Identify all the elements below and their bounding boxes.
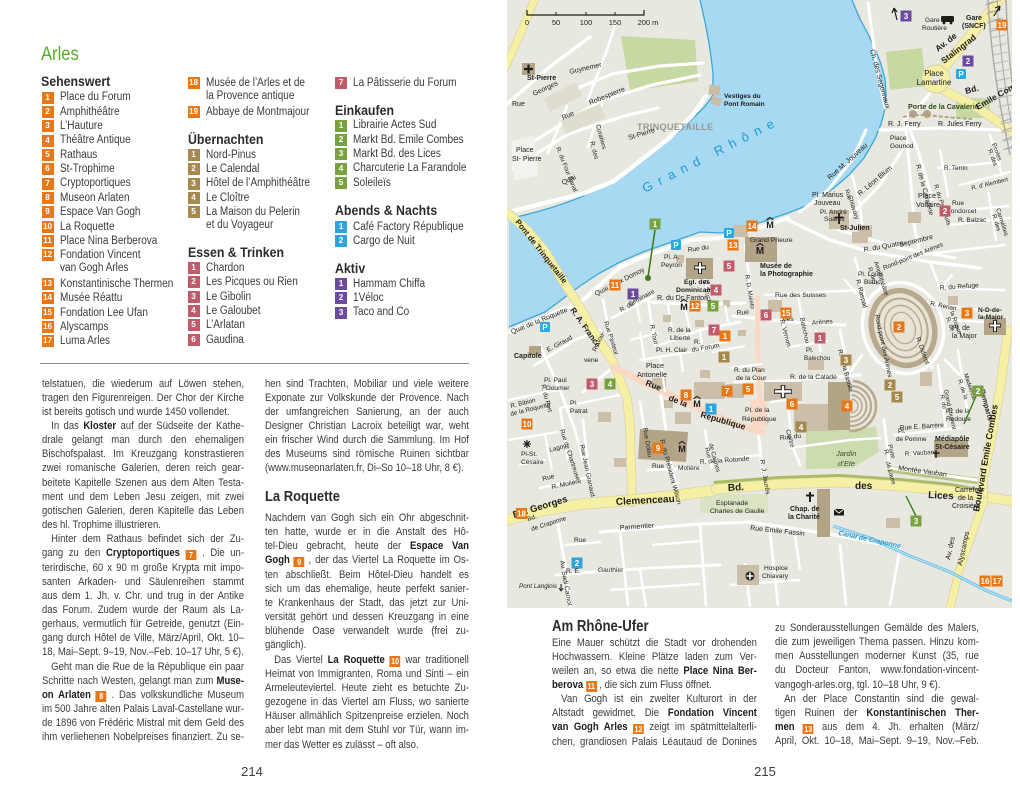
svg-text:la Major: la Major [952, 333, 978, 340]
svg-text:Place: Place [890, 135, 907, 142]
svg-text:St-Césaire: St-Césaire [935, 444, 970, 451]
svg-text:1: 1 [723, 332, 728, 341]
svg-text:17: 17 [993, 577, 1002, 586]
svg-text:Suarez: Suarez [824, 216, 845, 223]
svg-text:P: P [673, 241, 679, 250]
svg-text:la-Major: la-Major [978, 314, 1004, 321]
svg-text:Liberté: Liberté [670, 335, 690, 342]
svg-text:Hospice: Hospice [764, 565, 788, 572]
svg-text:Pont Romain: Pont Romain [724, 101, 765, 108]
svg-text:1: 1 [631, 290, 636, 299]
svg-text:St- Pierre: St- Pierre [512, 156, 542, 163]
svg-text:Rue: Rue [737, 309, 750, 317]
svg-text:M: M [693, 399, 701, 409]
svg-text:Routière: Routière [922, 25, 947, 32]
svg-text:vene: vene [584, 357, 599, 364]
svg-text:Place: Place [646, 361, 664, 370]
svg-text:15: 15 [782, 309, 791, 318]
svg-text:2: 2 [943, 207, 948, 216]
svg-text:5: 5 [727, 262, 732, 271]
svg-text:Grand Prieure: Grand Prieure [750, 237, 793, 244]
svg-text:3: 3 [904, 12, 909, 21]
svg-text:St-Pierre: St-Pierre [527, 75, 556, 82]
svg-text:Rue: Rue [574, 537, 586, 544]
svg-text:5: 5 [746, 385, 751, 394]
svg-text:Charles de Gaulle: Charles de Gaulle [710, 508, 765, 515]
svg-text:Pl. de la: Pl. de la [745, 407, 770, 414]
svg-text:R. Balzac: R. Balzac [958, 217, 987, 224]
svg-text:Pl. H. Clair: Pl. H. Clair [656, 347, 688, 354]
svg-text:18: 18 [517, 510, 526, 519]
svg-text:6: 6 [790, 400, 795, 409]
svg-text:2: 2 [888, 381, 893, 390]
svg-text:Blanc: Blanc [864, 279, 881, 286]
svg-text:Place: Place [516, 147, 534, 154]
svg-text:Place: Place [924, 69, 944, 78]
svg-text:2: 2 [976, 387, 981, 396]
svg-text:150: 150 [609, 18, 622, 27]
svg-text:Capitole: Capitole [514, 353, 542, 360]
svg-text:Jardin: Jardin [835, 449, 856, 458]
svg-text:12: 12 [691, 302, 700, 311]
svg-text:Carrefour: Carrefour [955, 487, 985, 494]
svg-text:M: M [756, 246, 764, 257]
svg-text:M: M [766, 220, 774, 230]
svg-text:Vestiges du: Vestiges du [724, 93, 761, 100]
svg-text:St-Julien: St-Julien [840, 225, 870, 232]
svg-text:14: 14 [748, 222, 757, 231]
svg-text:Gounod: Gounod [890, 143, 914, 150]
svg-text:N-D-de-: N-D-de- [978, 307, 1002, 314]
svg-text:de la Cour: de la Cour [736, 375, 767, 382]
svg-text:Pont Langlois: Pont Langlois [519, 583, 558, 590]
svg-text:1: 1 [709, 405, 714, 414]
svg-text:P: P [726, 229, 732, 238]
svg-text:10: 10 [523, 420, 532, 429]
svg-text:Rue: Rue [652, 463, 664, 470]
svg-text:11: 11 [611, 281, 620, 290]
svg-text:d’Ete: d’Ete [838, 459, 855, 468]
svg-text:Chiavary: Chiavary [762, 573, 789, 580]
svg-text:Balechou: Balechou [804, 355, 831, 362]
svg-text:Pl. Paul: Pl. Paul [544, 377, 567, 384]
svg-text:5: 5 [895, 393, 900, 402]
svg-text:P: P [958, 70, 964, 79]
svg-text:Molière: Molière [678, 465, 700, 472]
svg-text:de Pomme: de Pomme [896, 436, 927, 443]
svg-text:Lices: Lices [928, 490, 955, 502]
svg-text:Médiapôle: Médiapôle [935, 436, 969, 443]
svg-text:3: 3 [844, 356, 849, 365]
svg-text:M: M [680, 302, 688, 312]
svg-text:Rue des Suisses: Rue des Suisses [775, 292, 827, 299]
svg-text:des: des [855, 481, 873, 492]
svg-text:3: 3 [914, 517, 919, 526]
svg-text:19: 19 [998, 21, 1007, 30]
svg-text:Croisière: Croisière [952, 503, 980, 510]
svg-text:3: 3 [590, 380, 595, 389]
svg-text:Gauthier: Gauthier [598, 567, 624, 574]
svg-text:Pl. Louis: Pl. Louis [858, 271, 884, 278]
svg-text:4: 4 [845, 402, 850, 411]
svg-text:R. de la: R. de la [668, 327, 691, 334]
svg-text:3: 3 [965, 309, 970, 318]
svg-text:Pl. Marius: Pl. Marius [812, 192, 844, 199]
svg-text:Pl.: Pl. [806, 347, 814, 354]
svg-text:Peyron: Peyron [661, 262, 682, 269]
svg-text:2: 2 [897, 323, 902, 332]
svg-text:Rue: Rue [512, 101, 525, 108]
svg-text:Pl. André: Pl. André [820, 209, 847, 216]
svg-text:Condorcet: Condorcet [946, 208, 977, 215]
svg-text:6: 6 [764, 311, 769, 320]
svg-text:8: 8 [684, 391, 689, 400]
svg-text:de la: de la [958, 495, 973, 502]
svg-text:(SNCF): (SNCF) [962, 23, 986, 30]
svg-text:5: 5 [711, 302, 716, 311]
svg-text:1: 1 [653, 220, 658, 229]
svg-text:Porte de la Cavalerie: Porte de la Cavalerie [908, 102, 979, 111]
svg-text:100: 100 [580, 18, 593, 27]
svg-text:2: 2 [575, 559, 580, 568]
svg-text:Pl-St.: Pl-St. [521, 451, 537, 458]
svg-text:Césaire: Césaire [521, 459, 544, 466]
svg-text:9: 9 [656, 444, 661, 453]
svg-text:Musée de: Musée de [760, 263, 792, 270]
svg-text:Lamartine: Lamartine [917, 78, 952, 87]
svg-text:Rue: Rue [952, 200, 964, 207]
svg-text:Pl. A.: Pl. A. [664, 254, 680, 261]
svg-text:Bd.: Bd. [728, 482, 745, 494]
svg-text:la Photographie: la Photographie [760, 271, 813, 278]
svg-text:2: 2 [966, 57, 971, 66]
svg-text:R. Jules Ferry: R. Jules Ferry [938, 121, 982, 128]
svg-text:Patrat: Patrat [570, 408, 588, 415]
svg-text:13: 13 [729, 241, 738, 250]
svg-text:200 m: 200 m [638, 18, 659, 27]
svg-text:Antonelle: Antonelle [637, 370, 667, 379]
svg-text:Chap. de: Chap. de [790, 506, 820, 513]
svg-text:République: République [742, 416, 777, 423]
svg-text:7: 7 [712, 326, 717, 335]
svg-text:Gare: Gare [966, 15, 982, 22]
svg-text:4: 4 [799, 423, 804, 432]
svg-text:R. Terrin: R. Terrin [944, 165, 968, 172]
svg-text:Pl. de: Pl. de [952, 325, 970, 332]
svg-text:P: P [542, 323, 548, 332]
svg-text:Esplanade: Esplanade [716, 500, 748, 507]
svg-text:R. du Plan: R. du Plan [734, 367, 765, 374]
svg-text:Doumer: Doumer [546, 385, 570, 392]
svg-text:Pl.: Pl. [570, 400, 578, 407]
svg-text:7: 7 [725, 387, 730, 396]
svg-text:R. J. Ferry: R. J. Ferry [888, 121, 921, 128]
svg-text:50: 50 [552, 18, 560, 27]
svg-text:Jouveau: Jouveau [814, 200, 841, 207]
svg-text:1: 1 [722, 353, 727, 362]
svg-text:0: 0 [525, 18, 529, 27]
svg-text:M: M [678, 444, 686, 454]
svg-text:16: 16 [981, 577, 990, 586]
svg-text:la Charité: la Charité [788, 514, 820, 521]
svg-text:Gare: Gare [925, 17, 940, 24]
svg-text:R. de la Calade: R. de la Calade [790, 374, 837, 381]
svg-text:R. E.: R. E. [566, 568, 581, 575]
svg-text:1: 1 [818, 334, 823, 343]
svg-text:4: 4 [714, 286, 719, 295]
svg-text:Pl. de la: Pl. de la [946, 408, 970, 415]
svg-text:4: 4 [608, 380, 613, 389]
